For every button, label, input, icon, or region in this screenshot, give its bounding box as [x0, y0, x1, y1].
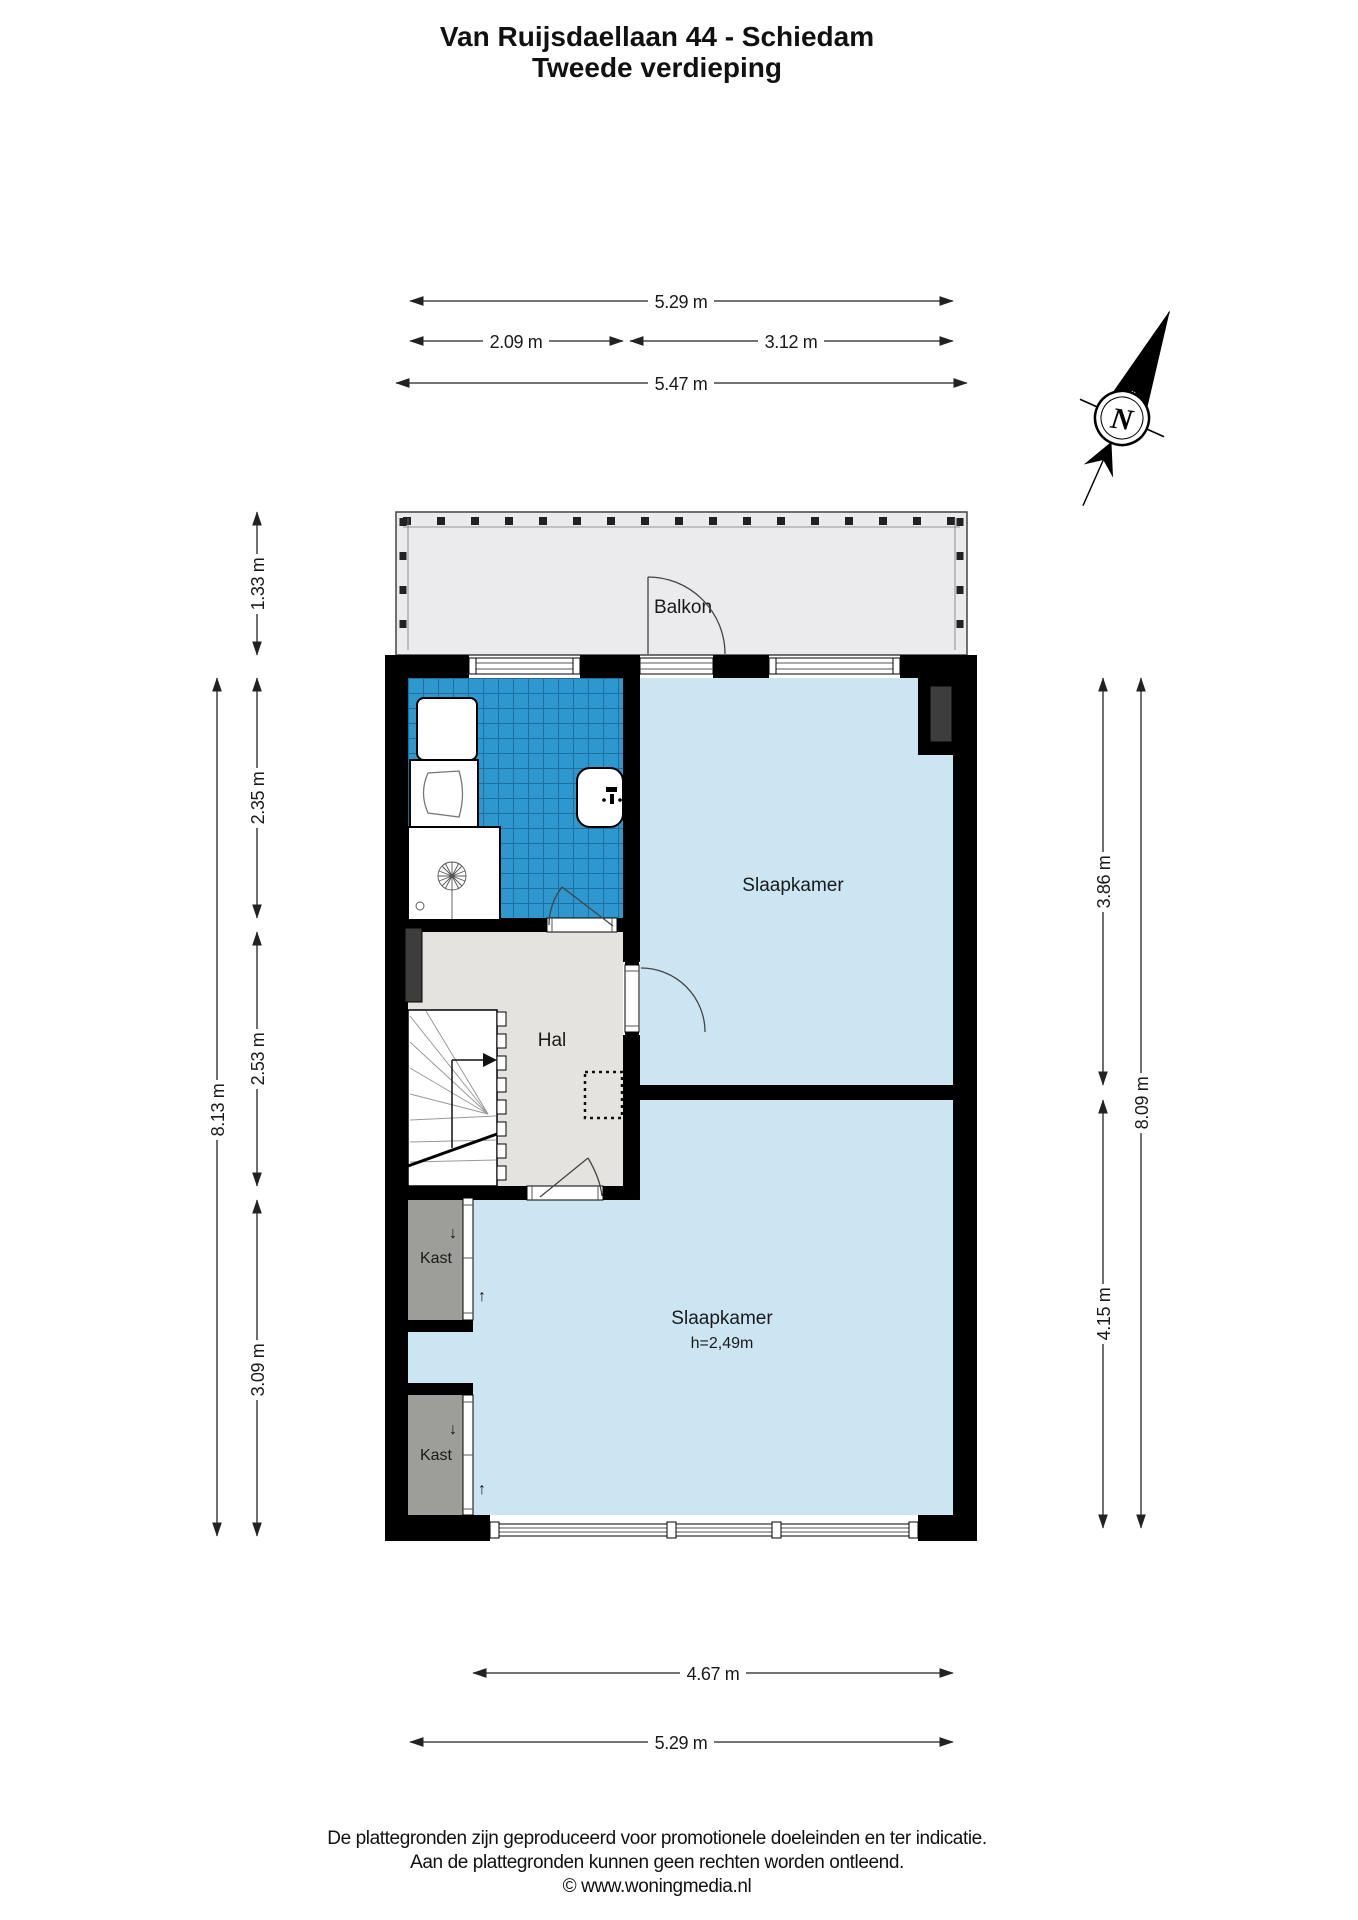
dim-left-kast: 3.09 m [248, 1344, 268, 1397]
dim-right-total: 8.09 m [1132, 1077, 1152, 1130]
room-label-slaapkamer-top: Slaapkamer [742, 875, 844, 896]
toilet-icon [577, 768, 623, 827]
staircase [408, 1010, 506, 1186]
dim-top-bathroom: 2.09 m [490, 332, 543, 352]
dimensions-top: 5.29 m 2.09 m 3.12 m 5.47 m [396, 289, 967, 395]
dimensions-bottom: 4.67 m 5.29 m [410, 1661, 953, 1754]
dim-left-bathroom: 2.35 m [248, 772, 268, 825]
window [769, 658, 900, 674]
sink-cabinet [410, 760, 478, 827]
footer-line1: De plattegronden zijn geproduceerd voor … [327, 1828, 986, 1849]
dim-right-bedroom-top: 3.86 m [1094, 856, 1114, 909]
compass-north-icon: N [1041, 291, 1212, 524]
room-label-slaapkamer-bottom: Slaapkamer [671, 1308, 773, 1329]
room-label-hal: Hal [538, 1030, 567, 1051]
dim-left-hal: 2.53 m [248, 1033, 268, 1086]
window [469, 658, 580, 674]
dim-bottom-total: 5.29 m [655, 1733, 708, 1753]
dim-left-balcony: 1.33 m [248, 558, 268, 611]
shaft-left [405, 928, 422, 1002]
washer-icon [417, 698, 477, 760]
bedroom-bottom-floor-left [473, 1200, 640, 1515]
dim-right-bedroom-bottom: 4.15 m [1094, 1288, 1114, 1341]
dim-left-total: 8.13 m [208, 1084, 228, 1137]
page-title: Van Ruijsdaellaan 44 - Schiedam Tweede v… [440, 21, 874, 83]
dim-top-inner-total: 5.29 m [655, 292, 708, 312]
title-line1: Van Ruijsdaellaan 44 - Schiedam [440, 21, 874, 52]
dim-top-bedroom: 3.12 m [765, 332, 818, 352]
footer-disclaimer: De plattegronden zijn geproduceerd voor … [327, 1828, 986, 1897]
balcony: Balkon [396, 512, 967, 655]
dim-top-outer: 5.47 m [655, 374, 708, 394]
dimensions-right: 3.86 m 4.15 m 8.09 m [1091, 678, 1153, 1528]
balcony-door-sill [640, 658, 713, 674]
footer-line2: Aan de plattegronden kunnen geen rechten… [410, 1852, 904, 1873]
floorplan-page: Van Ruijsdaellaan 44 - Schiedam Tweede v… [0, 0, 1358, 1920]
kast-bottom-down-arrow: ↓ [449, 1421, 457, 1438]
kast-top-up-arrow: ↑ [478, 1288, 486, 1305]
dimensions-left: 1.33 m 2.35 m 2.53 m 3.09 m 8.13 m [205, 512, 269, 1536]
title-line2: Tweede verdieping [532, 52, 782, 83]
top-windows [469, 658, 900, 674]
kast-top-down-arrow: ↓ [449, 1225, 457, 1242]
footer-line3: © www.woningmedia.nl [563, 1876, 752, 1897]
shaft-top-right [930, 686, 952, 742]
room-label-kast-top: Kast [420, 1250, 453, 1267]
room-label-ceiling-height: h=2,49m [691, 1335, 754, 1352]
room-label-kast-bottom: Kast [420, 1447, 453, 1464]
dim-bottom-bedroom: 4.67 m [687, 1664, 740, 1684]
bottom-windows [490, 1522, 918, 1538]
kast-bottom-up-arrow: ↑ [478, 1481, 486, 1498]
bedroom-nook-floor [408, 1332, 473, 1383]
